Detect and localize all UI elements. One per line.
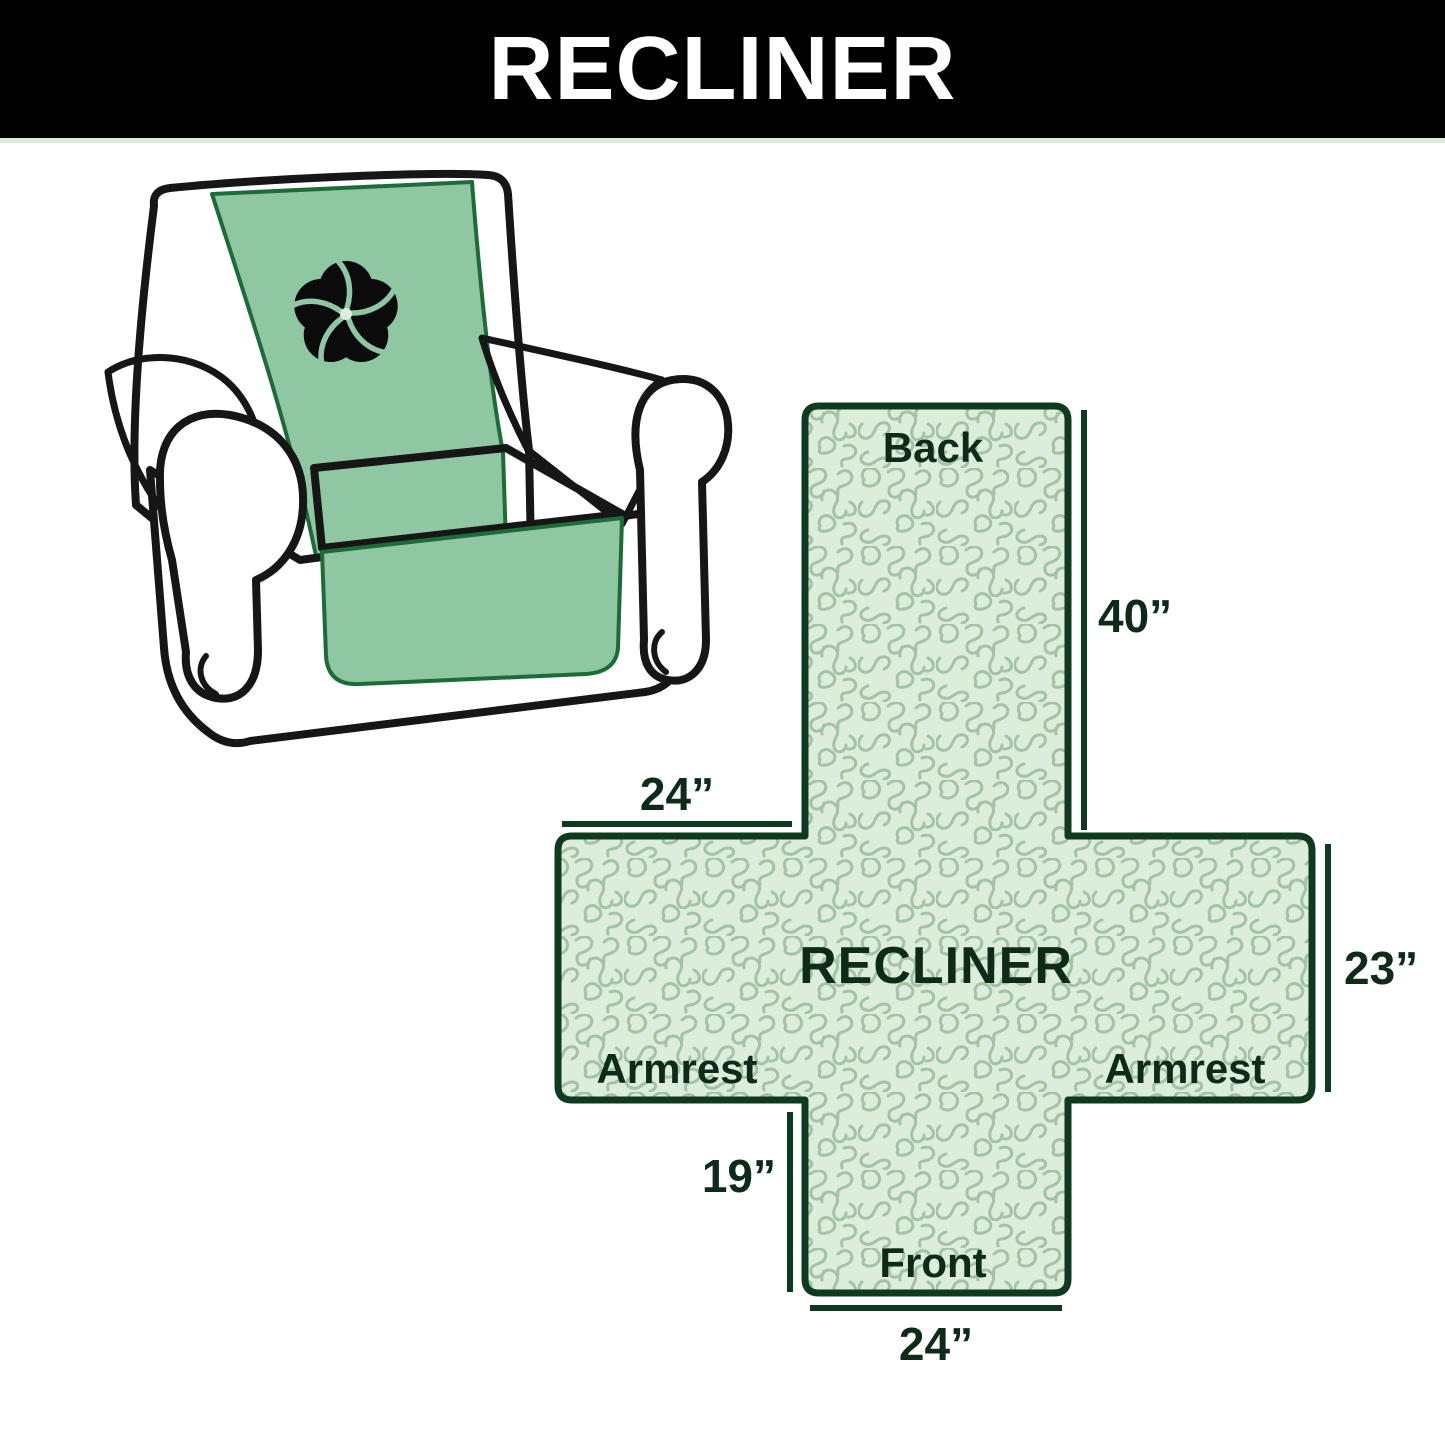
label-center: RECLINER: [799, 937, 1073, 995]
chair-right-arm-roll: [635, 379, 728, 681]
label-armrest-left: Armrest: [596, 1045, 757, 1092]
dim-bottom-width: 24”: [899, 1318, 973, 1370]
label-armrest-right: Armrest: [1104, 1045, 1265, 1092]
label-back: Back: [883, 424, 984, 471]
armchair-illustration: [108, 174, 728, 743]
pinwheel-center-dot: [340, 308, 352, 320]
dim-side-width: 23”: [1344, 942, 1418, 994]
dim-back-length: 40”: [1098, 590, 1172, 642]
diagram-canvas: Back RECLINER Armrest Armrest Front 40” …: [0, 0, 1445, 1445]
poster: RECLINER: [0, 0, 1445, 1445]
label-front: Front: [879, 1239, 986, 1286]
dim-front-length: 19”: [702, 1150, 776, 1202]
dim-top-width: 24”: [640, 768, 714, 820]
